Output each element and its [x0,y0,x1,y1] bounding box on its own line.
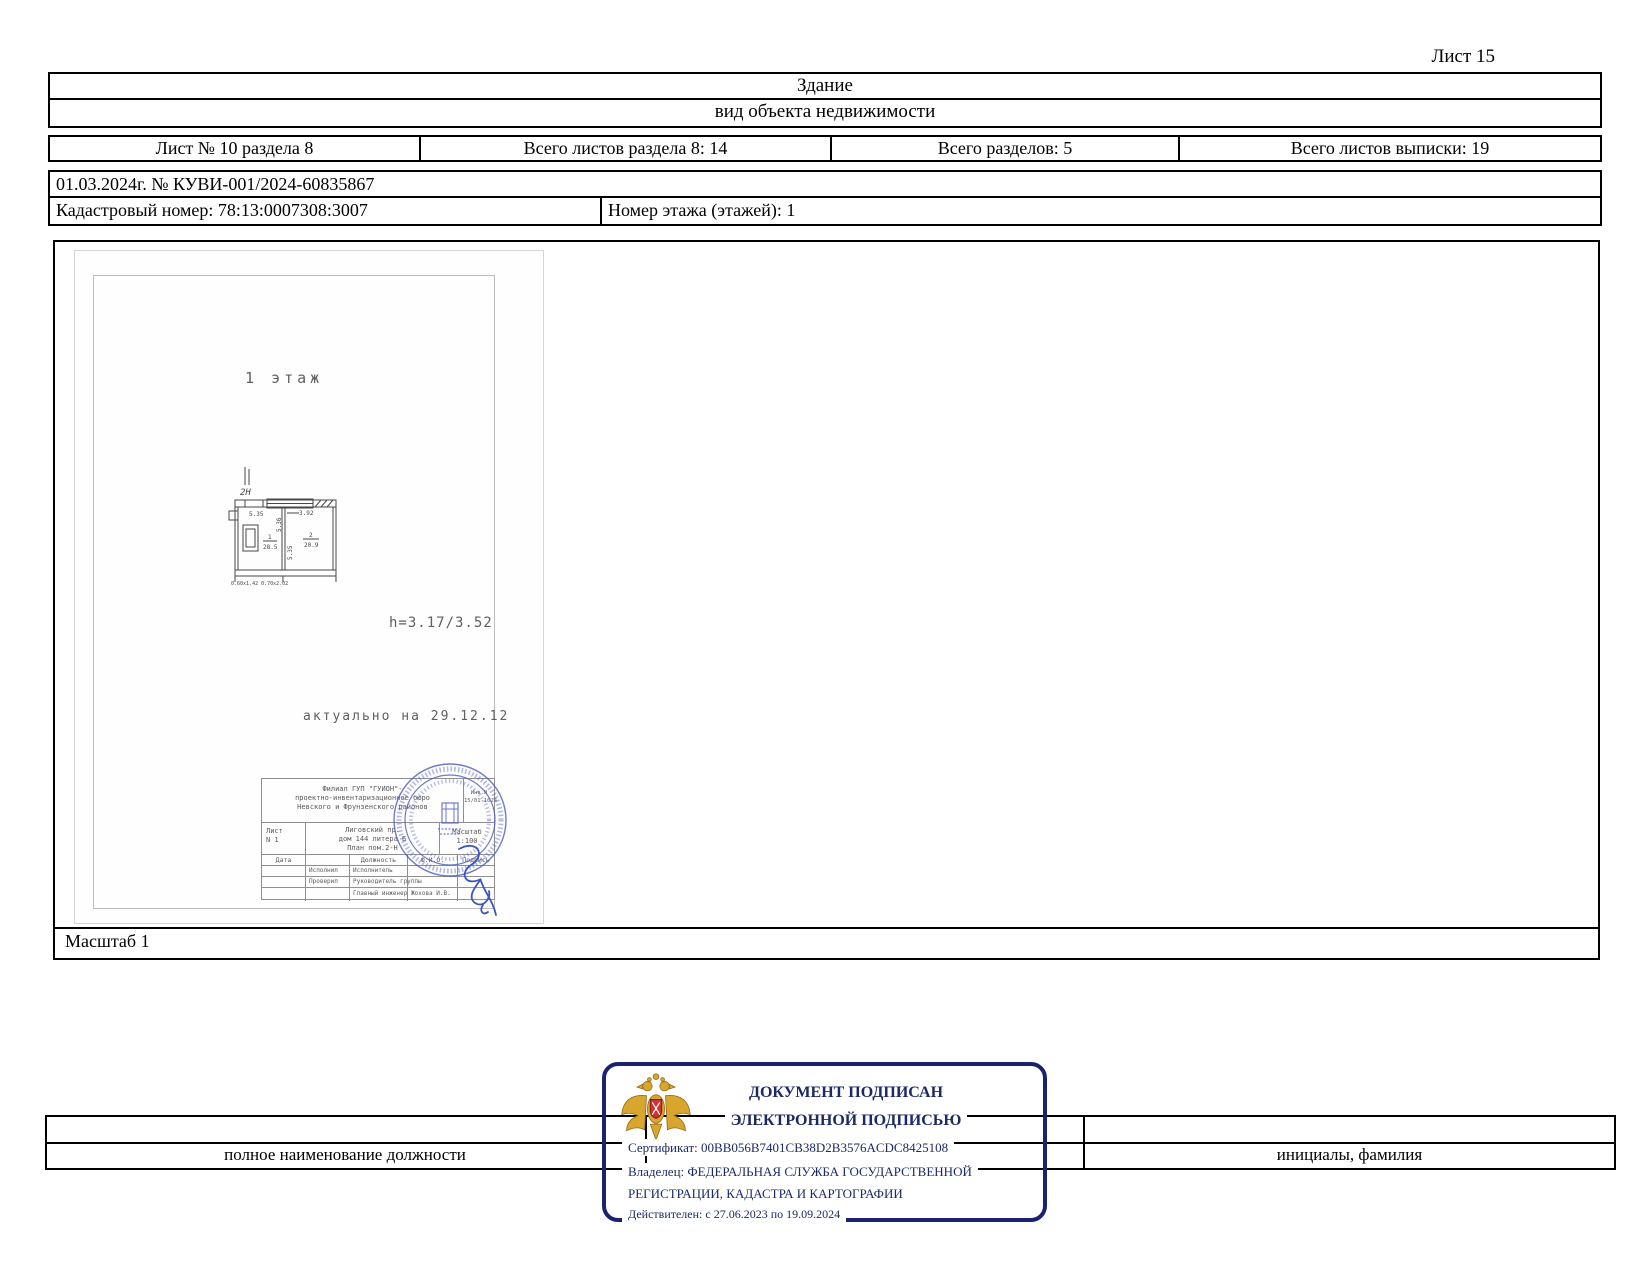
height-note: h=3.17/3.52 [389,615,493,631]
room1-area: 28.5 [263,544,278,551]
floor-plan-section: 1 этаж h=3.17/3.52 актуально на 29.12.12 [53,240,1600,960]
scanned-plan-sheet: 1 этаж h=3.17/3.52 актуально на 29.12.12 [74,250,544,924]
cadastral-number: Кадастровый номер: 78:13:0007308:3007 [50,198,602,224]
handwritten-signature [451,841,503,919]
extract-date-number: 01.03.2024г. № КУВИ-001/2024-60835867 [50,172,1600,198]
room2-number: 2 [309,532,313,539]
sheet-info-cell: Всего разделов: 5 [832,137,1180,160]
door-sizes: 0.60х1.42 0.70х2.02 [231,581,288,587]
premise-label: 2Н [240,488,251,498]
object-type-caption: вид объекта недвижимости [50,100,1600,126]
stamp-title-line1: ДОКУМЕНТ ПОДПИСАН [743,1083,949,1102]
name-caption: инициалы, фамилия [1083,1142,1616,1168]
room1-number: 1 [268,534,272,541]
dim-top-right: 3.92 [299,510,314,517]
sheet-info-cell: Всего листов выписки: 19 [1180,137,1600,160]
stamp-owner-line1: Владелец: ФЕДЕРАЛЬНАЯ СЛУЖБА ГОСУДАРСТВЕ… [622,1163,978,1180]
scale-label: Масштаб 1 [65,931,150,952]
floor-plan-drawing: 2Н 5.35 3.92 5.36 5.35 1 28.5 2 20.9 0.6… [225,455,345,587]
room2-area: 20.9 [304,542,319,549]
document-page: Лист 15 Здание вид объекта недвижимости … [0,0,1650,1275]
dim-mid-vertical: 5.36 [276,517,283,532]
position-caption: полное наименование должности [45,1142,645,1168]
scale-separator [55,927,1598,929]
sheet-info-cell: Лист № 10 раздела 8 [50,137,421,160]
sheet-info-cell: Всего листов раздела 8: 14 [421,137,832,160]
stamp-certificate: Сертификат: 00BB056B7401CB38D2B3576ACDC8… [622,1139,954,1156]
actuality-note: актуально на 29.12.12 [303,709,509,724]
object-type-table: Здание вид объекта недвижимости [48,72,1602,128]
floor-label: 1 этаж [245,369,323,387]
sheet-info-table: Лист № 10 раздела 8 Всего листов раздела… [48,135,1602,162]
floor-number: Номер этажа (этажей): 1 [602,198,1600,224]
sheet-number: Лист 15 [1431,46,1495,68]
stamp-validity: Действителен: с 27.06.2023 по 19.09.2024 [622,1206,846,1222]
coat-of-arms-icon [618,1070,694,1146]
stamp-title-line2: ЭЛЕКТРОННОЙ ПОДПИСЬЮ [725,1111,968,1130]
extract-meta-table: 01.03.2024г. № КУВИ-001/2024-60835867 Ка… [48,170,1602,226]
digital-signature-stamp: ДОКУМЕНТ ПОДПИСАН ЭЛЕКТРОННОЙ ПОДПИСЬЮ С… [602,1062,1047,1222]
title-block-sheet: Лист N 1 [262,823,306,854]
title-block-date-header: Дата [262,855,306,865]
object-type: Здание [50,74,1600,100]
stamp-owner-line2: РЕГИСТРАЦИИ, КАДАСТРА И КАРТОГРАФИИ [622,1185,909,1202]
dim-top-left: 5.35 [249,511,264,518]
dim-left-vertical: 5.35 [287,545,294,560]
